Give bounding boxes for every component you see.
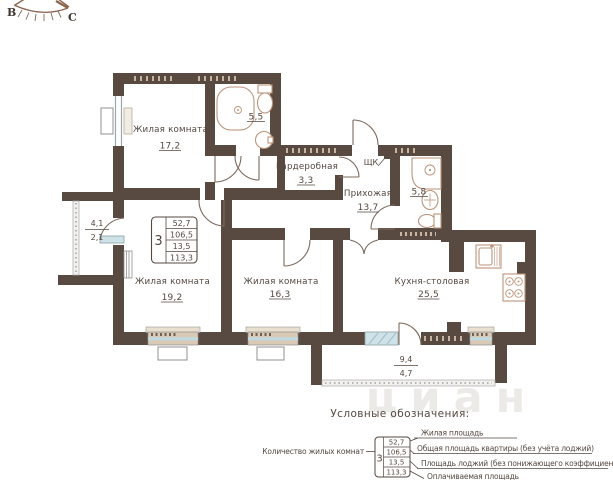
bathroom1-area: 5,5 [249,113,264,123]
compass-north-label: С [68,11,77,24]
stat-total-area: 106,5 [170,231,193,240]
bathtub-icon [217,87,254,130]
window-kitchen [468,327,494,345]
entrance-door [353,120,378,145]
legend-value-loggia: 13,5 [389,459,405,467]
hallway-area: 13,7 [358,203,379,213]
loggia-glazing [73,201,79,275]
exterior-box [158,347,187,360]
radiator-icon [124,251,132,278]
exterior-box [101,108,113,134]
stat-living-area: 52,7 [173,219,191,228]
loggia-area-full: 4,1 [91,219,104,228]
window-sill [124,108,132,134]
legend: Условные обозначения: Количество жилых к… [262,408,613,480]
kitchen-wall-nub [447,322,461,332]
living2-name: Жилая комната [135,277,210,287]
legend-value-paid: 113,3 [386,469,406,477]
legend-label-paid: Оплачиваемая площадь [427,472,519,480]
living3-name: Жилая комната [244,277,319,287]
loggia-area-reduced: 2,1 [91,233,104,242]
kitchen-sink-icon [476,244,501,268]
living3-area: 16,3 [270,290,291,300]
balcony-area-full: 9,4 [400,355,413,364]
electrical-box-label: ЩК [364,158,379,167]
kitchen-area: 25,5 [418,290,439,300]
compass [14,0,69,21]
room-living1 [124,84,205,188]
kitchen-duct-pier [449,242,464,272]
living2-area: 19,2 [162,293,183,303]
electrical-box-icon [384,151,396,159]
bathroom2-area: 5,8 [412,188,427,198]
compass-arc [14,5,68,12]
balcony-glazing [322,380,495,386]
stat-rooms-count: 3 [154,234,162,249]
compass-needle-west [15,0,36,5]
toilet-icon-bath2 [419,214,442,228]
living1-name: Жилая комната [133,125,208,135]
window-living2 [146,327,200,360]
floor-plan-drawing: циан В С [0,0,613,480]
floor-plan-page: циан В С [0,0,613,480]
legend-label-living: Жилая площадь [421,429,483,438]
legend-value-total: 106,5 [386,449,406,457]
window-living3 [246,327,300,360]
compass-east-label: В [7,6,16,19]
balcony-area-reduced: 4,7 [400,369,413,378]
wardrobe-area: 3,3 [299,176,314,186]
shower-icon-bath2 [412,158,441,189]
living1-area: 17,2 [160,142,181,152]
stat-box: 3 52,7 106,5 13,5 113,3 [152,217,198,263]
wardrobe-name: Гардеробная [276,162,338,172]
legend-rooms-count-label: Количество жилых комнат [262,447,365,456]
legend-label-loggia: Площадь лоджий (без понижающего коэффици… [421,459,613,468]
legend-title: Условные обозначения: [330,408,469,420]
stove-icon [503,274,525,301]
toilet-icon-bath1 [258,85,273,113]
legend-value-living: 52,7 [389,439,405,447]
hallway-name: Прихожая [344,189,392,199]
stat-loggia-area: 13,5 [173,242,191,251]
kitchen-name: Кухня-столовая [395,277,470,287]
legend-rooms-count-value: 3 [376,454,382,465]
stat-paid-area: 113,3 [170,254,193,263]
legend-box: 3 52,7 106,5 13,5 113,3 [375,437,410,477]
sink-icon-bath1 [256,132,274,149]
window-kitchen-balcony [365,332,398,345]
exterior-box [257,347,284,360]
legend-label-total: Общая площадь квартиры (без учёта лоджий… [417,444,594,453]
